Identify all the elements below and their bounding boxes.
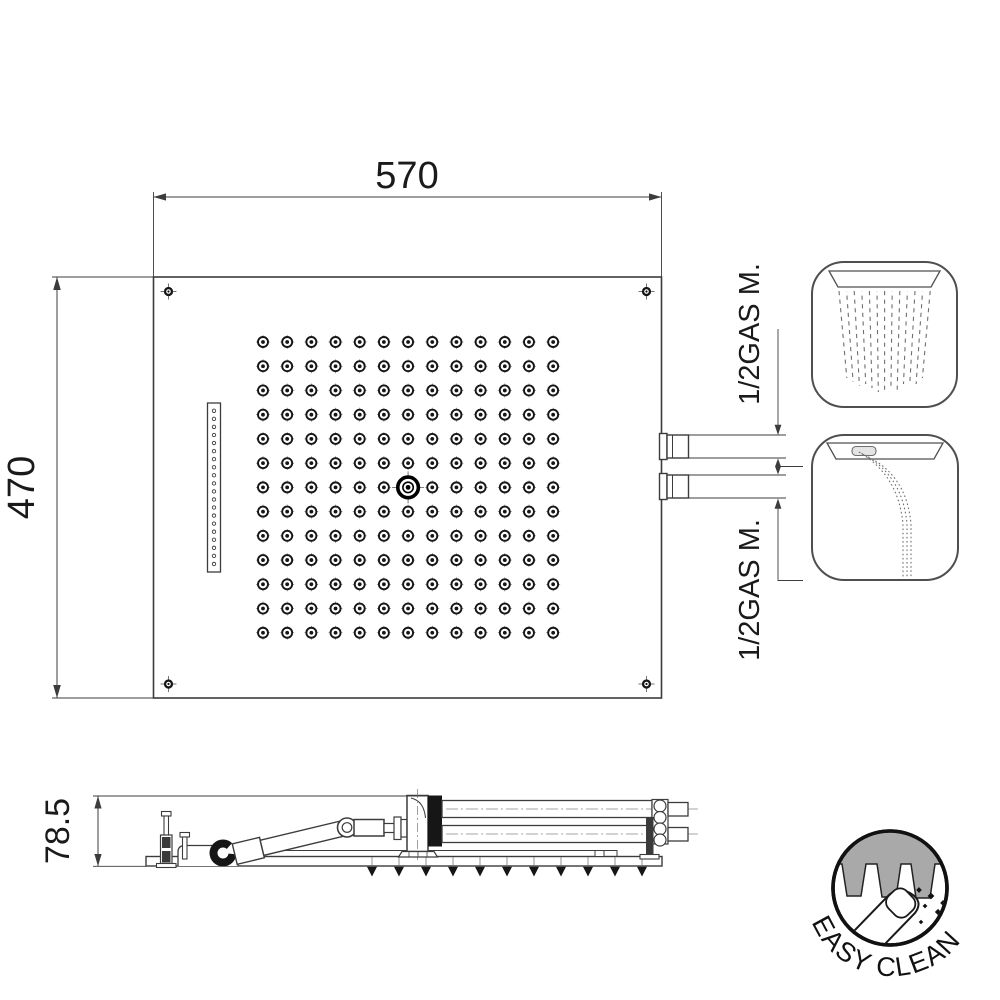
pipe-connection-1 <box>660 434 787 460</box>
arrow-up-icon <box>94 796 101 809</box>
dim-side-height-value: 78.5 <box>39 798 77 864</box>
connection-leaders <box>775 329 803 581</box>
arrow-left-icon <box>154 193 167 200</box>
gas-label-1: 1/2GAS M. <box>734 263 766 405</box>
waterfall-slot <box>208 403 221 572</box>
arrow-down-icon <box>775 466 781 474</box>
arrow-right-icon <box>649 193 662 200</box>
arrow-up-icon <box>775 459 781 467</box>
pipe-connections <box>660 434 787 500</box>
rain-spray-icon <box>812 262 957 407</box>
pipe-connection-2 <box>660 474 787 500</box>
arrow-down-icon <box>94 854 101 866</box>
arrow-down-icon <box>53 685 61 698</box>
drawing-canvas: 570 470 1/2GAS M. 1/2GAS M. <box>0 0 1000 1000</box>
top-view <box>154 277 804 698</box>
arrow-up-icon <box>775 499 782 509</box>
horizontal-arm <box>354 817 407 840</box>
technical-drawing: 570 470 1/2GAS M. 1/2GAS M. <box>0 0 1000 1000</box>
side-view <box>146 789 700 877</box>
arrow-down-icon <box>775 425 782 435</box>
dim-height: 470 <box>1 277 153 698</box>
arrow-up-icon <box>53 277 61 290</box>
shower-head-profile <box>829 271 940 287</box>
supply-pipes-side <box>442 800 700 847</box>
waterfall-opening <box>852 447 876 456</box>
dim-height-value: 470 <box>1 456 43 519</box>
easy-clean-badge: EASY CLEAN <box>806 824 967 983</box>
dim-width-value: 570 <box>375 155 438 197</box>
waterfall-spray-icon <box>812 435 958 580</box>
gas-label-2: 1/2GAS M. <box>734 519 766 661</box>
dim-width: 570 <box>154 155 662 277</box>
shower-head-profile <box>827 443 943 459</box>
